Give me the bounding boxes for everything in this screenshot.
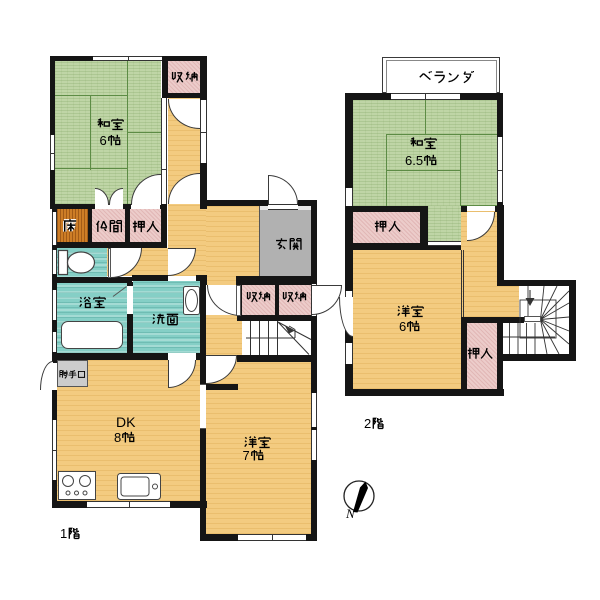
svg-text:N: N [345,506,356,519]
